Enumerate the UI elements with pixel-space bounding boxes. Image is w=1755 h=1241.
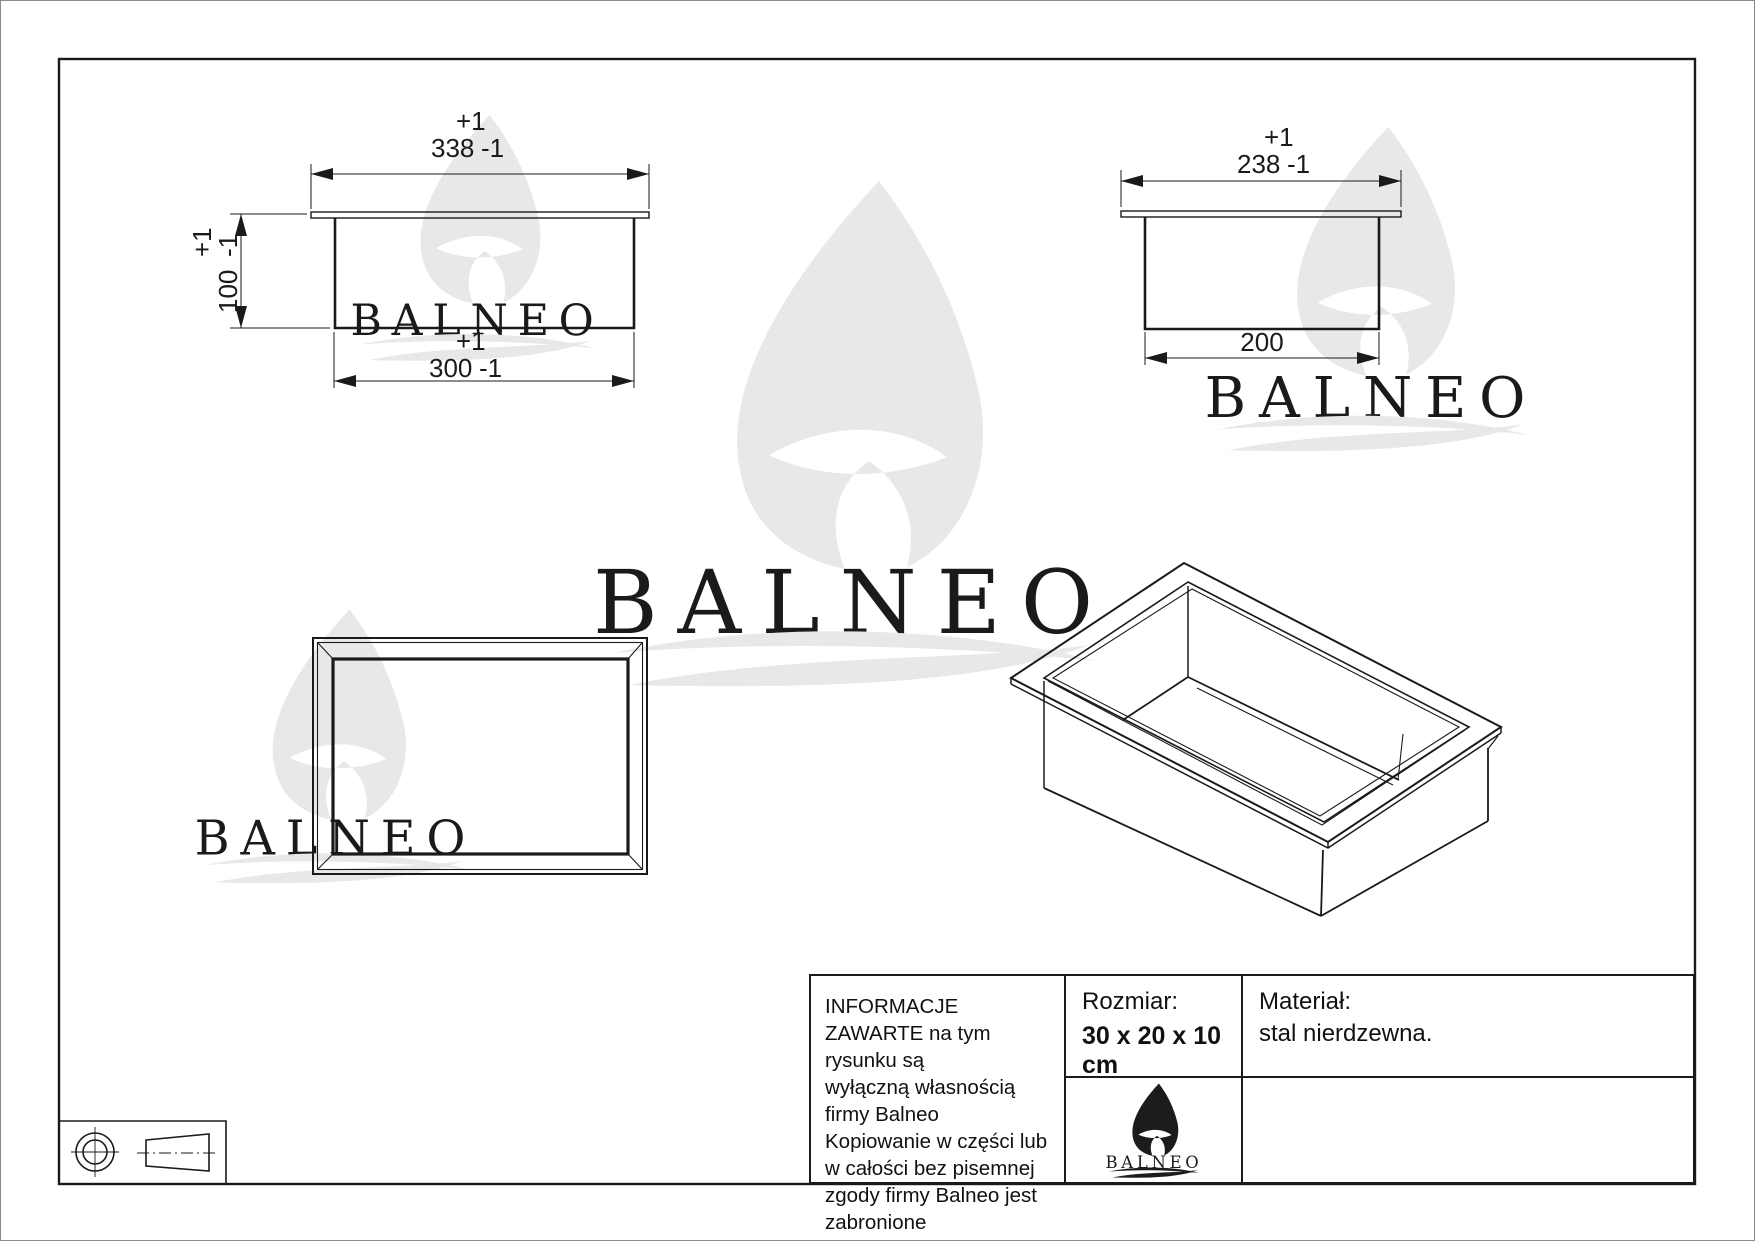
- dim-front-width-minus: -1: [481, 133, 504, 163]
- size-label: Rozmiar:: [1082, 988, 1225, 1016]
- size-value: 30 x 20 x 10 cm: [1082, 1022, 1225, 1080]
- material-value: stal nierdzewna.: [1259, 1020, 1677, 1048]
- size-cell: Rozmiar: 30 x 20 x 10 cm: [1066, 976, 1241, 1076]
- isometric-view: [1011, 563, 1501, 916]
- dim-front-inner-value: 300: [429, 353, 472, 383]
- dim-side-width-plus: +1: [1264, 122, 1294, 152]
- dim-front-inner-minus: -1: [479, 353, 502, 383]
- side-view: +1 238 -1 200: [1121, 122, 1401, 365]
- projection-symbol: [59, 1121, 226, 1184]
- drawing-sheet: BALNEO +1 338 -1: [0, 0, 1755, 1241]
- legal-notice: INFORMACJE ZAWARTE na tym rysunku są wył…: [811, 976, 1064, 1182]
- dim-side-width-minus: -1: [1287, 149, 1310, 179]
- miter-corners: [318, 643, 642, 869]
- balneo-logo: [1066, 1078, 1241, 1182]
- dim-front-height-value: 100: [213, 270, 243, 313]
- material-label: Materiał:: [1259, 988, 1677, 1016]
- material-cell: Materiał: stal nierdzewna.: [1243, 976, 1693, 1076]
- dim-front-height-plus: +1: [187, 227, 217, 257]
- balneo-logo-icon: [1098, 1081, 1210, 1180]
- dim-front-width-plus: +1: [456, 106, 486, 136]
- front-width-dimension: [311, 164, 649, 209]
- dim-side-width-value: 238: [1237, 149, 1280, 179]
- dim-front-inner-plus: +1: [456, 326, 486, 356]
- dim-front-width-value: 338: [431, 133, 474, 163]
- dim-front-height-minus: -1: [213, 234, 243, 257]
- dim-side-inner-value: 200: [1240, 327, 1283, 357]
- elevation-view: [313, 638, 647, 874]
- title-block: INFORMACJE ZAWARTE na tym rysunku są wył…: [809, 974, 1695, 1184]
- front-view: +1 338 -1 100 -1 +1 +1 300: [187, 106, 649, 388]
- front-height-dimension: [230, 214, 330, 328]
